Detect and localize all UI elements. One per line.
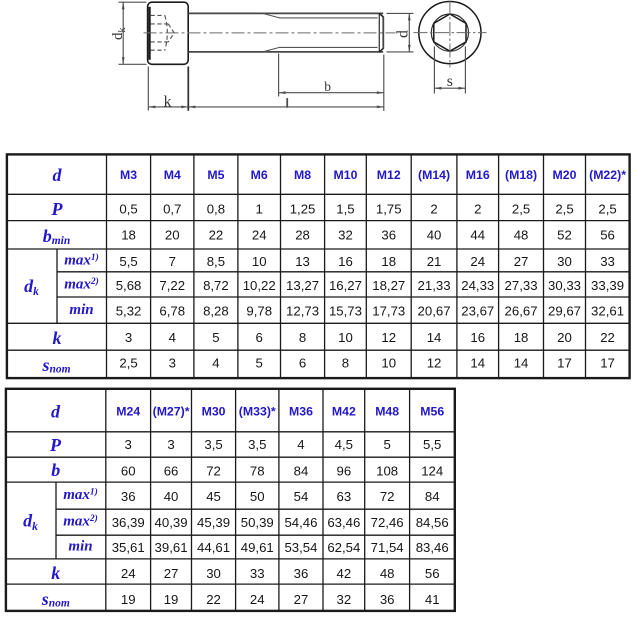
svg-text:2,5: 2,5 [598,201,616,216]
svg-text:18,27: 18,27 [372,278,405,293]
svg-text:24,33: 24,33 [461,278,494,293]
svg-text:d: d [394,30,411,38]
svg-text:(M18): (M18) [505,168,537,182]
svg-text:84,56: 84,56 [416,515,449,530]
svg-text:17: 17 [557,355,572,370]
svg-text:54,46: 54,46 [284,515,317,530]
svg-text:16,27: 16,27 [329,278,362,293]
svg-text:27,33: 27,33 [505,278,538,293]
svg-text:53,54: 53,54 [284,540,317,555]
svg-text:14: 14 [470,355,485,370]
svg-text:5,68: 5,68 [116,278,142,293]
svg-text:5: 5 [212,330,219,345]
svg-text:21,33: 21,33 [418,278,451,293]
svg-text:9,78: 9,78 [246,304,272,319]
svg-text:60: 60 [121,463,136,478]
svg-text:5: 5 [383,437,390,452]
svg-text:M12: M12 [377,168,401,182]
svg-text:4: 4 [297,437,304,452]
svg-text:10: 10 [381,355,396,370]
svg-text:1: 1 [256,201,263,216]
svg-text:d: d [53,165,63,185]
svg-text:1,25: 1,25 [290,201,316,216]
svg-text:P: P [49,435,62,455]
svg-text:96: 96 [337,463,352,478]
svg-text:k: k [53,328,62,348]
svg-text:30: 30 [557,254,572,269]
svg-text:50: 50 [250,489,265,504]
svg-text:P: P [51,199,64,219]
svg-text:22: 22 [206,592,221,607]
svg-text:49,61: 49,61 [241,540,274,555]
svg-text:18: 18 [381,254,396,269]
svg-text:21: 21 [427,254,442,269]
svg-text:k: k [51,563,60,583]
svg-text:M36: M36 [289,405,313,419]
svg-text:0,5: 0,5 [119,201,137,216]
svg-text:27: 27 [514,254,529,269]
svg-text:8,72: 8,72 [203,278,229,293]
svg-text:M8: M8 [294,168,311,182]
svg-text:16: 16 [470,330,485,345]
svg-text:54: 54 [294,489,309,504]
svg-text:26,67: 26,67 [505,304,538,319]
svg-text:3: 3 [167,437,174,452]
svg-text:(M14): (M14) [418,168,450,182]
svg-text:52: 52 [557,227,572,242]
svg-text:22: 22 [600,330,615,345]
svg-text:66: 66 [164,463,179,478]
svg-text:39,61: 39,61 [155,540,188,555]
svg-text:M24: M24 [116,405,140,419]
svg-text:12,73: 12,73 [286,304,319,319]
svg-text:30: 30 [206,566,221,581]
svg-text:0,8: 0,8 [207,201,225,216]
svg-text:35,61: 35,61 [112,540,145,555]
svg-text:22: 22 [209,227,224,242]
svg-text:1,75: 1,75 [376,201,402,216]
svg-text:max1): max1) [64,252,99,269]
svg-text:56: 56 [600,227,615,242]
svg-text:12: 12 [381,330,396,345]
svg-text:bmin: bmin [43,226,71,247]
svg-text:dk: dk [23,511,38,533]
svg-text:10: 10 [252,254,267,269]
svg-text:M56: M56 [420,405,444,419]
svg-text:27: 27 [164,566,179,581]
svg-text:4: 4 [169,330,176,345]
svg-text:45,39: 45,39 [197,515,230,530]
svg-text:44: 44 [470,227,485,242]
svg-text:48: 48 [514,227,529,242]
svg-text:dk: dk [24,276,39,298]
svg-text:40: 40 [164,489,179,504]
svg-text:4,5: 4,5 [335,437,353,452]
svg-text:6: 6 [299,355,306,370]
svg-text:33: 33 [250,566,265,581]
svg-text:2: 2 [430,201,437,216]
svg-text:M10: M10 [333,168,357,182]
svg-text:M20: M20 [553,168,577,182]
svg-text:23,67: 23,67 [461,304,494,319]
svg-text:33: 33 [600,254,615,269]
svg-text:7: 7 [169,254,176,269]
svg-text:20: 20 [557,330,572,345]
svg-text:40,39: 40,39 [155,515,188,530]
svg-text:7,22: 7,22 [159,278,185,293]
svg-text:18: 18 [514,330,529,345]
svg-text:24: 24 [121,566,136,581]
svg-text:36: 36 [294,566,309,581]
svg-text:20: 20 [165,227,180,242]
svg-text:max1): max1) [63,487,98,504]
svg-text:2: 2 [474,201,481,216]
svg-text:18: 18 [121,227,136,242]
svg-text:3,5: 3,5 [248,437,266,452]
svg-text:63: 63 [337,489,352,504]
svg-text:4: 4 [212,355,219,370]
svg-text:6: 6 [256,330,263,345]
svg-text:8: 8 [299,330,306,345]
svg-text:36: 36 [381,227,396,242]
svg-text:24: 24 [250,592,265,607]
svg-text:M42: M42 [332,405,356,419]
svg-text:24: 24 [252,227,267,242]
svg-text:42: 42 [337,566,352,581]
svg-text:(M33)*: (M33)* [239,405,276,419]
svg-text:2,5: 2,5 [555,201,573,216]
svg-text:84: 84 [425,489,440,504]
svg-text:M48: M48 [375,405,399,419]
svg-text:72: 72 [206,463,221,478]
svg-text:10,22: 10,22 [243,278,276,293]
svg-text:8,5: 8,5 [207,254,225,269]
svg-text:29,67: 29,67 [548,304,581,319]
svg-text:min: min [68,538,92,554]
svg-text:6,78: 6,78 [159,304,185,319]
svg-text:28: 28 [295,227,310,242]
svg-text:84: 84 [294,463,309,478]
svg-text:44,61: 44,61 [197,540,230,555]
svg-text:d: d [51,402,61,422]
svg-text:108: 108 [376,463,398,478]
svg-text:dk: dk [110,27,128,40]
svg-text:33,39: 33,39 [591,278,624,293]
svg-text:24: 24 [470,254,485,269]
svg-text:41: 41 [425,592,440,607]
svg-text:14: 14 [427,330,442,345]
svg-text:17,73: 17,73 [372,304,405,319]
svg-text:b: b [51,460,60,480]
svg-text:63,46: 63,46 [327,515,360,530]
svg-text:8: 8 [342,355,349,370]
svg-text:71,54: 71,54 [371,540,404,555]
svg-text:0,7: 0,7 [163,201,181,216]
svg-text:snom: snom [41,355,70,376]
svg-text:5: 5 [256,355,263,370]
svg-text:5,32: 5,32 [116,304,142,319]
svg-text:5,5: 5,5 [119,254,137,269]
svg-text:30,33: 30,33 [548,278,581,293]
svg-text:8,28: 8,28 [203,304,229,319]
svg-text:k: k [164,94,172,111]
svg-text:72,46: 72,46 [371,515,404,530]
svg-text:10: 10 [338,330,353,345]
svg-text:15,73: 15,73 [329,304,362,319]
svg-text:62,54: 62,54 [327,540,360,555]
svg-text:36,39: 36,39 [112,515,145,530]
svg-text:16: 16 [338,254,353,269]
svg-text:(M22)*: (M22)* [589,168,626,182]
svg-text:12: 12 [427,355,442,370]
svg-text:19: 19 [121,592,136,607]
svg-text:M16: M16 [466,168,490,182]
svg-text:83,46: 83,46 [416,540,449,555]
svg-text:20,67: 20,67 [418,304,451,319]
svg-text:36: 36 [121,489,136,504]
svg-text:32: 32 [338,227,353,242]
svg-text:32: 32 [337,592,352,607]
svg-text:14: 14 [514,355,529,370]
svg-text:max2): max2) [64,276,99,293]
svg-text:M5: M5 [207,168,224,182]
svg-text:2,5: 2,5 [512,201,530,216]
svg-text:32,61: 32,61 [591,304,624,319]
svg-text:1,5: 1,5 [336,201,354,216]
svg-text:27: 27 [294,592,309,607]
svg-text:56: 56 [425,566,440,581]
svg-text:M4: M4 [164,168,181,182]
svg-text:50,39: 50,39 [241,515,274,530]
svg-text:72: 72 [380,489,395,504]
svg-text:b: b [324,79,331,94]
svg-text:3,5: 3,5 [204,437,222,452]
svg-text:snom: snom [41,589,70,610]
svg-text:124: 124 [421,463,443,478]
svg-text:17: 17 [600,355,615,370]
svg-text:78: 78 [250,463,265,478]
svg-text:19: 19 [164,592,179,607]
svg-text:3: 3 [169,355,176,370]
svg-text:s: s [447,73,453,90]
svg-text:40: 40 [427,227,442,242]
svg-text:max2): max2) [63,513,98,530]
svg-text:M30: M30 [202,405,226,419]
svg-text:36: 36 [380,592,395,607]
svg-text:3: 3 [125,330,132,345]
svg-text:(M27)*: (M27)* [153,405,190,419]
svg-text:M3: M3 [120,168,137,182]
svg-text:5,5: 5,5 [423,437,441,452]
svg-text:48: 48 [380,566,395,581]
svg-text:3: 3 [125,437,132,452]
svg-text:2,5: 2,5 [119,355,137,370]
svg-text:13,27: 13,27 [286,278,319,293]
svg-text:M6: M6 [251,168,268,182]
svg-text:45: 45 [206,489,221,504]
svg-text:min: min [69,302,93,318]
svg-text:13: 13 [295,254,310,269]
